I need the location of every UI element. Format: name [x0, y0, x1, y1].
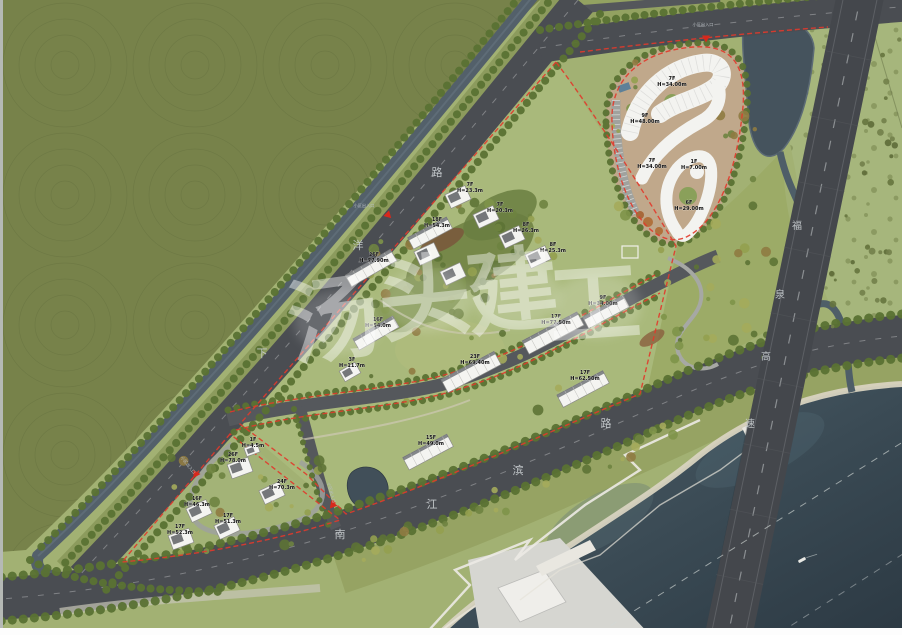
- tree-icon: [869, 248, 876, 255]
- tree-icon: [738, 111, 749, 122]
- road-name-char: 下: [257, 347, 268, 360]
- tree-icon: [533, 405, 544, 416]
- tree-icon: [875, 298, 880, 303]
- building-height: H=34.00m: [657, 82, 686, 88]
- tree-icon: [831, 325, 835, 329]
- tree-icon: [274, 502, 279, 507]
- tree-icon: [458, 207, 465, 214]
- tree-icon: [730, 300, 736, 306]
- residential-site-master-plan: { "plan": { "type": "landscape-architect…: [0, 0, 902, 635]
- tree-icon: [608, 465, 612, 469]
- building-height: H=48.00m: [630, 119, 659, 125]
- tree-icon: [399, 527, 409, 537]
- building-height: H=7.00m: [681, 165, 707, 171]
- tree-icon: [880, 53, 885, 58]
- tree-icon: [734, 249, 742, 257]
- tree-icon: [362, 558, 366, 562]
- tree-icon: [880, 297, 886, 303]
- tree-icon: [409, 368, 416, 375]
- tree-icon: [834, 279, 837, 282]
- tree-icon: [670, 354, 679, 363]
- tree-icon: [620, 457, 624, 461]
- tree-icon: [881, 118, 886, 123]
- building-height: H=23.3m: [457, 188, 483, 194]
- building-height: H=78.0m: [220, 458, 246, 464]
- road-name-char: 高: [761, 350, 771, 363]
- tree-icon: [555, 385, 562, 392]
- tree-icon: [436, 526, 444, 534]
- tree-icon: [706, 283, 714, 291]
- tree-icon: [877, 129, 884, 136]
- tree-icon: [351, 542, 361, 552]
- tree-icon: [494, 508, 499, 513]
- tree-icon: [859, 290, 865, 296]
- building-height: H=46.3m: [184, 502, 210, 508]
- tree-icon: [171, 484, 177, 490]
- tree-icon: [502, 508, 510, 516]
- tree-icon: [206, 464, 216, 474]
- tree-icon: [659, 423, 666, 430]
- tree-icon: [369, 374, 373, 378]
- tree-icon: [614, 201, 624, 211]
- tree-icon: [279, 539, 290, 550]
- tree-icon: [303, 483, 309, 489]
- tree-icon: [769, 257, 778, 266]
- tree-icon: [384, 545, 393, 554]
- tree-icon: [845, 214, 848, 217]
- tree-icon: [712, 255, 721, 264]
- tree-icon: [884, 96, 888, 100]
- tree-icon: [889, 154, 893, 158]
- tree-icon: [658, 247, 664, 253]
- tree-icon: [750, 176, 756, 182]
- entrance-label: 小区出入口: [354, 202, 375, 209]
- tree-icon: [679, 326, 684, 331]
- tree-icon: [620, 210, 631, 221]
- tree-icon: [632, 59, 638, 65]
- tree-icon: [289, 541, 294, 546]
- tree-icon: [710, 219, 721, 230]
- building-height: H=69.40m: [460, 360, 489, 366]
- tree-icon: [167, 454, 175, 462]
- entrance-label: 小区出入口: [693, 21, 714, 28]
- road-name-char: 南: [335, 528, 346, 541]
- road-name-char: 路: [601, 417, 612, 430]
- tree-icon: [258, 474, 263, 479]
- tree-icon: [851, 260, 855, 264]
- tree-icon: [723, 134, 728, 139]
- building-height: H=26.3m: [513, 228, 539, 234]
- tree-icon: [886, 249, 892, 255]
- tree-icon: [371, 546, 380, 555]
- watermark-char: 工: [545, 248, 644, 361]
- tree-icon: [749, 201, 758, 210]
- tree-icon: [728, 335, 739, 346]
- tree-icon: [465, 510, 472, 517]
- tree-icon: [290, 504, 294, 508]
- tree-icon: [661, 314, 667, 320]
- tree-icon: [631, 77, 638, 84]
- tree-icon: [542, 480, 550, 488]
- tree-icon: [442, 521, 448, 527]
- tree-icon: [517, 354, 523, 360]
- tree-icon: [854, 268, 860, 274]
- bottom-edge-strip: [0, 628, 902, 635]
- road-name-char: 泉: [775, 288, 785, 301]
- tree-icon: [892, 142, 898, 148]
- tree-icon: [494, 224, 502, 232]
- tree-icon: [706, 297, 710, 301]
- tree-icon: [897, 37, 901, 41]
- tree-icon: [675, 341, 684, 350]
- tree-icon: [739, 298, 750, 309]
- tree-icon: [862, 170, 867, 175]
- tree-icon: [694, 264, 699, 269]
- road-name-char: 福: [792, 219, 802, 232]
- tree-icon: [745, 260, 750, 265]
- building-height: H=70.3m: [269, 485, 295, 491]
- tree-icon: [703, 335, 710, 342]
- tree-icon: [753, 127, 757, 131]
- tree-icon: [871, 278, 877, 284]
- tree-icon: [751, 331, 758, 338]
- tree-icon: [370, 535, 377, 542]
- tree-icon: [887, 179, 894, 186]
- tree-icon: [378, 239, 383, 244]
- tree-icon: [860, 161, 865, 166]
- tree-icon: [865, 245, 870, 250]
- road-name-char: 路: [432, 166, 443, 179]
- tree-icon: [491, 487, 497, 493]
- tree-icon: [209, 497, 220, 508]
- tree-icon: [539, 200, 548, 209]
- tree-icon: [890, 136, 895, 141]
- tree-icon: [631, 442, 640, 451]
- tree-icon: [883, 79, 889, 85]
- building-height: H=51.3m: [215, 519, 241, 525]
- tree-icon: [219, 472, 226, 479]
- tree-icon: [616, 129, 620, 133]
- tree-icon: [318, 464, 327, 473]
- master-plan-canvas: 7FH=34.00m9FH=48.00m7FH=34.00m1FH=7.00m6…: [0, 0, 902, 635]
- building-height: H=4.5m: [242, 443, 264, 449]
- road-name-char: 江: [427, 498, 438, 511]
- tree-icon: [761, 247, 771, 257]
- road-name-char: 速: [745, 418, 755, 430]
- watermark-char: 头: [373, 241, 476, 357]
- tree-icon: [742, 323, 752, 333]
- building-height: H=52.3m: [167, 530, 193, 536]
- road-name-char: 洋: [353, 238, 364, 252]
- tree-icon: [730, 132, 738, 140]
- tree-icon: [649, 427, 657, 435]
- tree-icon: [379, 534, 387, 542]
- building-height: H=49.0m: [418, 441, 444, 447]
- watermark-char: 汤: [281, 261, 387, 380]
- road-name-char: 滨: [513, 463, 524, 477]
- building-height: H=34.00m: [637, 164, 666, 170]
- tree-icon: [830, 301, 837, 308]
- building-height: H=29.00m: [674, 206, 703, 212]
- tree-icon: [633, 85, 637, 89]
- building-height: H=62.50m: [570, 376, 599, 382]
- tree-icon: [868, 121, 875, 128]
- flower-bed: [643, 217, 653, 227]
- tree-icon: [626, 452, 636, 462]
- tree-icon: [668, 430, 678, 440]
- building-height: H=20.3m: [487, 208, 513, 214]
- tree-icon: [475, 506, 483, 514]
- left-edge-strip: [0, 0, 3, 635]
- tree-icon: [878, 250, 882, 254]
- tree-icon: [582, 465, 591, 474]
- tree-icon: [829, 271, 834, 276]
- tree-icon: [304, 509, 311, 516]
- building-height: H=54.3m: [424, 223, 450, 229]
